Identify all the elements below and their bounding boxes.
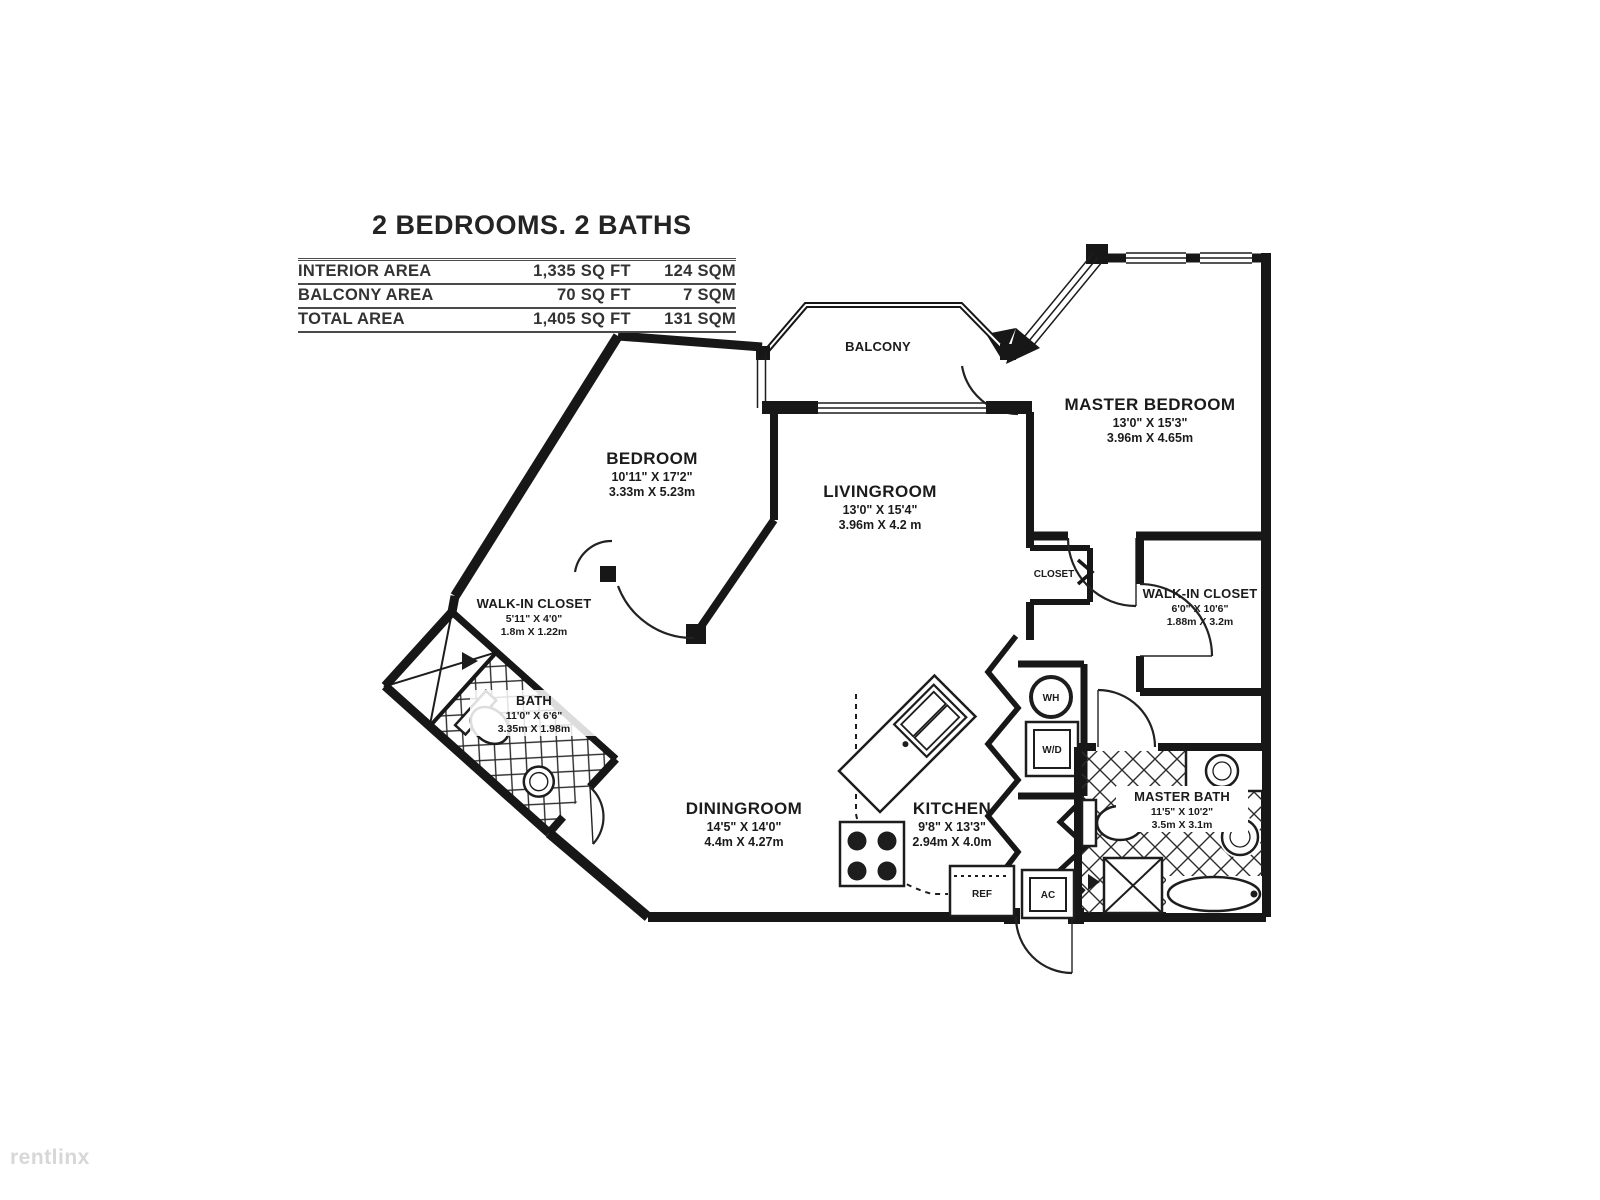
svg-text:3.33m X 5.23m: 3.33m X 5.23m [609,485,695,499]
table-row: BALCONY AREA 70 SQ FT 7 SQM [298,285,736,309]
balcony-rail [756,305,1016,408]
mb-sink1-icon [1206,755,1238,787]
floorplan-drawing: BALCONY BEDROOM 10'11" X 17'2" 3.33m X 5… [0,0,1600,1200]
rentlinx-watermark: rentlinx [10,1146,90,1170]
svg-text:1.88m X 3.2m: 1.88m X 3.2m [1167,616,1234,628]
lower-left-diagonal-wall [549,833,648,917]
svg-text:2.94m X 4.0m: 2.94m X 4.0m [912,835,991,849]
area-row-sqft: 70 SQ FT [499,286,630,305]
area-row-sqft: 1,405 SQ FT [499,310,630,329]
ac-label: AC [1041,890,1055,901]
master-bath-door-arc [1098,690,1155,747]
refrigerator-label: REF [972,889,992,900]
livingroom-window [818,403,986,413]
washer-dryer-label: W/D [1042,745,1061,756]
area-row-label: BALCONY AREA [298,286,499,305]
tub-faucet [1251,891,1258,898]
bedroom-top-wall [618,336,762,347]
svg-text:3.96m X 4.65m: 3.96m X 4.65m [1107,431,1193,445]
area-row-sqm: 124 SQM [631,262,736,281]
bath-label: BATH [516,693,552,708]
svg-text:13'0" X 15'3": 13'0" X 15'3" [1113,416,1188,430]
area-row-sqm: 7 SQM [631,286,736,305]
svg-text:13'0" X 15'4": 13'0" X 15'4" [843,503,918,517]
lr-window-block-right [986,401,1032,414]
kitchen-label: KITCHEN [913,799,991,818]
bedroom-door-arc [618,586,694,638]
bathtub-icon [1168,877,1260,911]
master-bedroom-label: MASTER BEDROOM [1065,395,1236,414]
svg-text:3.35m X 1.98m: 3.35m X 1.98m [498,723,570,735]
master-bath-label: MASTER BATH [1134,789,1230,804]
closet-label: CLOSET [1034,569,1075,580]
bedroom-label: BEDROOM [606,449,698,468]
svg-text:6'0" X 10'6": 6'0" X 10'6" [1172,603,1229,615]
area-table: INTERIOR AREA 1,335 SQ FT 124 SQM BALCON… [298,258,736,333]
svg-text:10'11" X 17'2": 10'11" X 17'2" [611,470,692,484]
svg-text:11'0" X 6'6": 11'0" X 6'6" [506,710,562,722]
table-row: INTERIOR AREA 1,335 SQ FT 124 SQM [298,261,736,285]
svg-text:1.8m X 1.22m: 1.8m X 1.22m [501,626,568,638]
table-row: TOTAL AREA 1,405 SQ FT 131 SQM [298,309,736,333]
area-row-sqft: 1,335 SQ FT [499,262,630,281]
walkin-closet-right-label: WALK-IN CLOSET [1143,586,1258,601]
diagonal-window [1020,252,1102,352]
svg-text:4.4m X 4.27m: 4.4m X 4.27m [704,835,783,849]
area-row-label: TOTAL AREA [298,310,499,329]
svg-text:14'5" X 14'0": 14'5" X 14'0" [707,820,782,834]
closet-door-jamb [600,566,616,582]
wall-connector [452,596,455,612]
svg-text:3.5m X 3.1m: 3.5m X 3.1m [1152,819,1213,831]
diningroom-label: DININGROOM [686,799,802,818]
bath-door-leaf [590,787,593,844]
livingroom-label: LIVINGROOM [823,482,937,501]
mb-toilet-tank [1082,800,1096,846]
svg-text:5'11" X 4'0": 5'11" X 4'0" [506,613,562,625]
lr-window-block-left [762,401,818,414]
bedroom-diagonal-wall [455,336,618,596]
entry-door-arc [1016,917,1072,973]
livingroom-diagonal-wall [700,520,774,628]
balcony-label: BALCONY [845,339,911,354]
svg-text:3.96m X 4.2 m: 3.96m X 4.2 m [839,518,922,532]
page-title: 2 BEDROOMS. 2 BATHS [372,210,692,241]
area-row-label: INTERIOR AREA [298,262,499,281]
bedroom-door-jamb [686,624,706,644]
kitchen-island [839,676,975,812]
area-row-sqm: 131 SQM [631,310,736,329]
svg-text:9'8" X 13'3": 9'8" X 13'3" [918,820,986,834]
walkin-closet-left-label: WALK-IN CLOSET [477,596,592,611]
window-end-block [1086,244,1108,264]
water-heater-label: WH [1043,693,1060,704]
svg-text:11'5" X 10'2": 11'5" X 10'2" [1151,806,1213,818]
